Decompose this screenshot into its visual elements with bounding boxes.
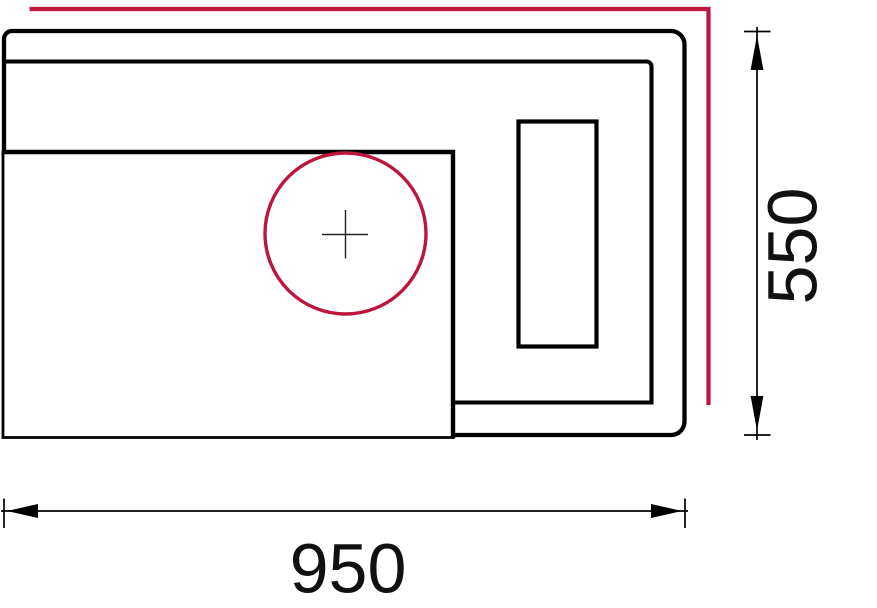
height-dimension: 550 — [744, 27, 832, 440]
technical-drawing-page: 550 950 — [0, 0, 877, 608]
height-dimension-label: 550 — [754, 188, 832, 305]
left-panel-outline — [3, 152, 453, 438]
technical-drawing-canvas: 550 950 — [0, 0, 877, 608]
arrow-down-icon — [751, 396, 764, 431]
rectangular-cutout — [519, 122, 597, 347]
width-dimension-label: 950 — [290, 530, 407, 608]
arrow-right-icon — [651, 504, 682, 518]
arrow-left-icon — [7, 504, 38, 518]
arrow-up-icon — [751, 36, 764, 71]
width-dimension: 950 — [1, 499, 688, 608]
